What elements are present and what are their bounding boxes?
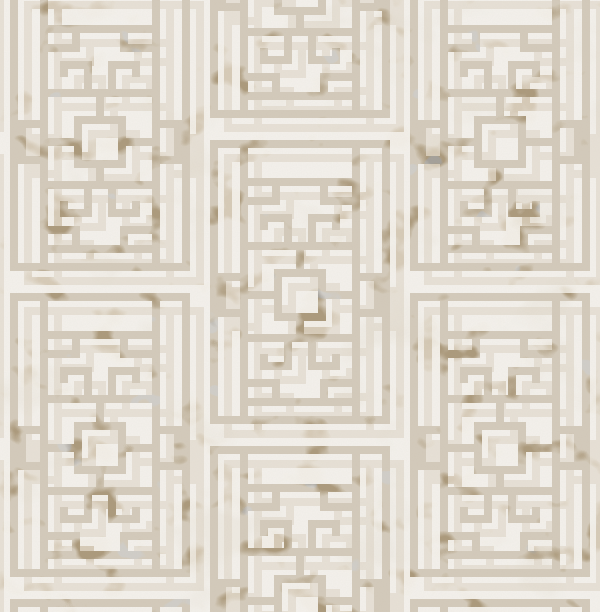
wallpaper-swatch [0, 0, 600, 612]
grain-texture-layer [0, 0, 600, 612]
lattice-pattern-image [0, 0, 600, 612]
